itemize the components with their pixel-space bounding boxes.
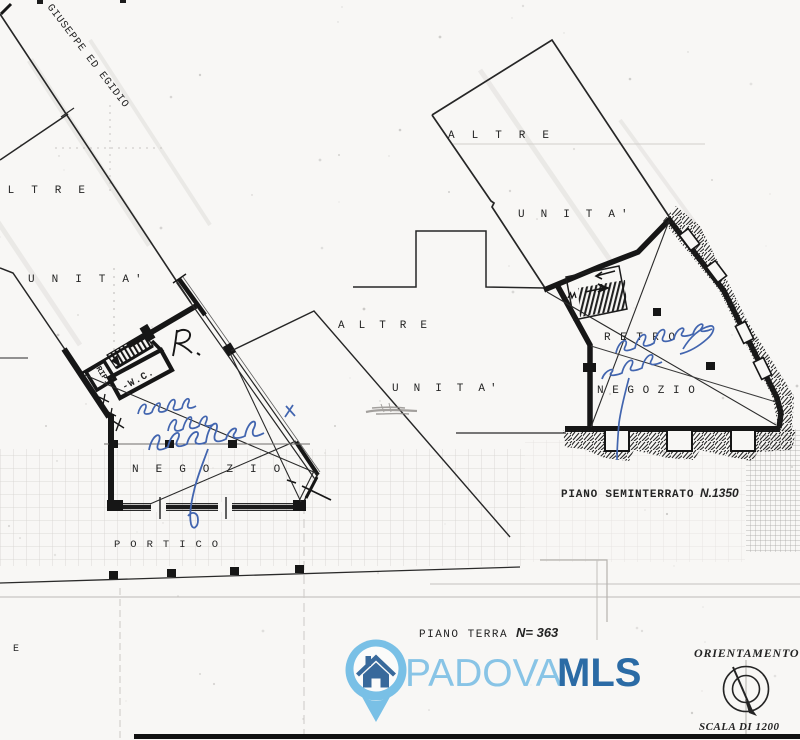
svg-text:UNITA': UNITA' — [518, 209, 644, 221]
svg-text:E: E — [13, 644, 19, 655]
svg-text:UNITA': UNITA' — [392, 383, 512, 395]
svg-text:NEGOZIO: NEGOZIO — [132, 464, 297, 476]
svg-text:PORTICO: PORTICO — [114, 539, 228, 551]
svg-text:MLS: MLS — [557, 651, 641, 695]
svg-text:UNITA': UNITA' — [28, 274, 159, 286]
svg-text:PIANO SEMINTERRATO: PIANO SEMINTERRATO — [561, 489, 694, 501]
svg-text:PIANO TERRA: PIANO TERRA — [419, 629, 508, 641]
svg-text:ALTRE: ALTRE — [0, 185, 102, 197]
svg-text:PADOVA: PADOVA — [405, 652, 562, 695]
svg-text:SCALA DI 1200: SCALA DI 1200 — [699, 721, 779, 733]
svg-text:ALTRE: ALTRE — [448, 130, 566, 142]
svg-text:ALTRE: ALTRE — [338, 320, 441, 332]
svg-text:ORIENTAMENTO: ORIENTAMENTO — [694, 646, 799, 660]
svg-text:N= 363: N= 363 — [516, 625, 559, 640]
svg-text:N.1350: N.1350 — [700, 486, 739, 500]
svg-text:NEGOZIO: NEGOZIO — [597, 385, 703, 397]
